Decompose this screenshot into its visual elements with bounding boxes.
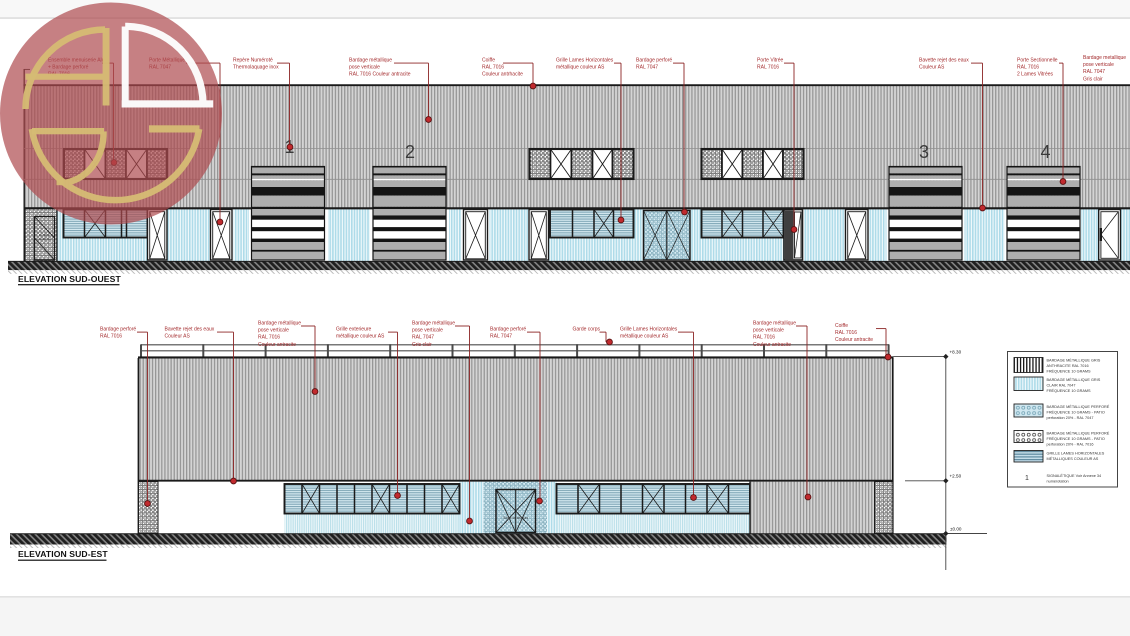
svg-text:3: 3 [919, 142, 929, 162]
svg-text:Repère NumérotéThermolaquage i: Repère NumérotéThermolaquage inox [233, 58, 279, 71]
svg-text:ELEVATION SUD-OUEST: ELEVATION SUD-OUEST [18, 274, 121, 284]
svg-text:GRILLE LAMES HORIZONTALESMÉTAL: GRILLE LAMES HORIZONTALESMÉTALLIQUES COU… [1047, 452, 1105, 461]
svg-text:+8.30: +8.30 [950, 350, 962, 355]
svg-text:2: 2 [405, 142, 415, 162]
svg-text:Sortie de secours: Sortie de secours [503, 516, 528, 520]
svg-text:métallique: métallique [38, 237, 52, 241]
svg-text:±0.00: ±0.00 [950, 527, 962, 532]
svg-text:+2.50: +2.50 [950, 474, 962, 479]
svg-text:Garde corps: Garde corps [573, 327, 601, 333]
svg-text:1: 1 [1025, 475, 1029, 482]
svg-text:4: 4 [1040, 142, 1050, 162]
svg-text:ELEVATION SUD-EST: ELEVATION SUD-EST [18, 549, 108, 559]
